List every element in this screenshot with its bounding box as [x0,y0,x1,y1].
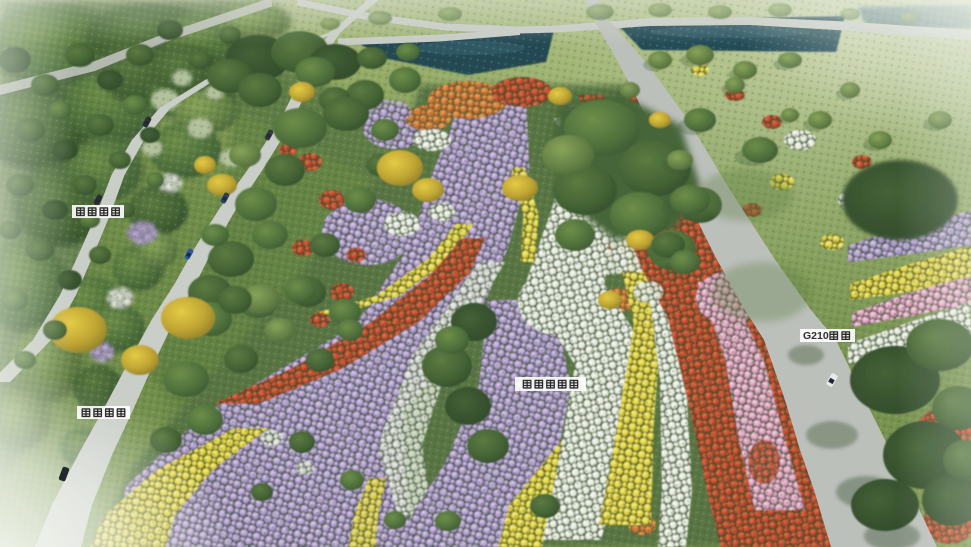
svg-text:G210: G210 [803,330,829,342]
